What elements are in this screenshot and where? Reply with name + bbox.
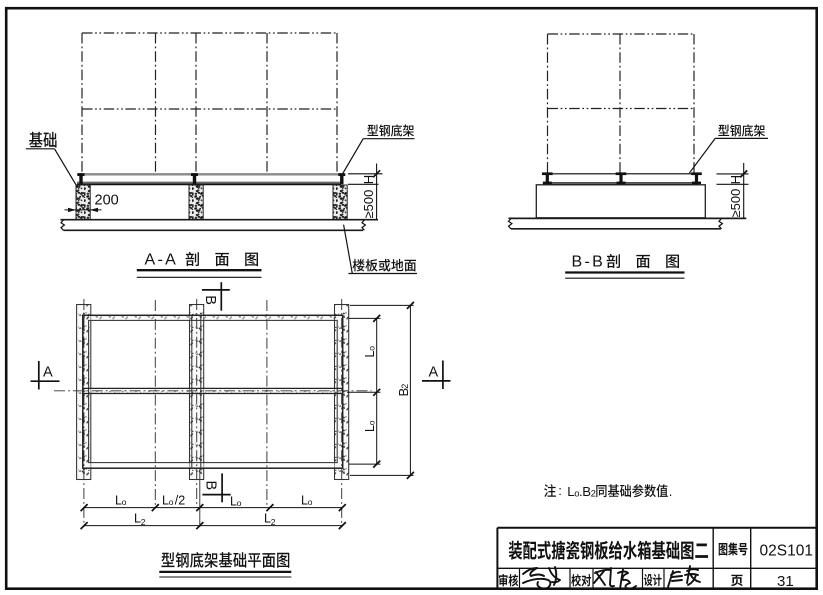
svg-text:o: o bbox=[367, 346, 377, 351]
svg-text:B: B bbox=[202, 295, 218, 305]
svg-text:/2: /2 bbox=[175, 494, 185, 508]
svg-text:o: o bbox=[122, 497, 127, 507]
svg-text::: : bbox=[558, 483, 562, 498]
svg-text:200: 200 bbox=[95, 193, 119, 209]
svg-text:≥500: ≥500 bbox=[728, 189, 743, 218]
svg-text:A-A: A-A bbox=[145, 252, 179, 269]
svg-text:o: o bbox=[169, 497, 174, 507]
svg-text:2: 2 bbox=[271, 517, 276, 527]
svg-text:A: A bbox=[429, 365, 439, 381]
svg-text:≥500: ≥500 bbox=[361, 190, 376, 219]
svg-text:H: H bbox=[728, 175, 743, 184]
svg-text:B-B: B-B bbox=[572, 254, 606, 271]
svg-text:o: o bbox=[308, 497, 313, 507]
svg-text:H: H bbox=[361, 175, 376, 184]
svg-text:B: B bbox=[203, 481, 219, 491]
svg-text:2: 2 bbox=[591, 488, 596, 499]
svg-text:02S101: 02S101 bbox=[760, 543, 813, 560]
svg-text:A: A bbox=[43, 365, 53, 381]
svg-text:.: . bbox=[669, 484, 673, 499]
svg-text:o: o bbox=[237, 498, 242, 508]
svg-text:o: o bbox=[367, 420, 377, 425]
svg-text:2: 2 bbox=[400, 384, 410, 389]
svg-text:31: 31 bbox=[777, 573, 794, 590]
svg-text:2: 2 bbox=[141, 517, 146, 527]
